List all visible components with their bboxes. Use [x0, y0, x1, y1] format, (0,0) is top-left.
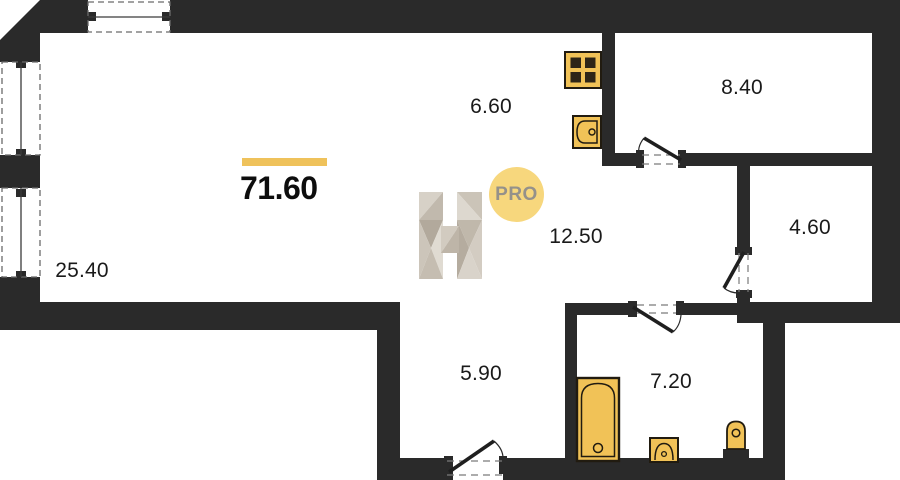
- total-area-underline: [242, 158, 327, 166]
- room-area-label-living-room: 25.40: [55, 259, 109, 283]
- floor-plan: 25.40 6.60 8.40 4.60 12.50 5.90 7.20 71.…: [0, 0, 900, 480]
- pro-badge: PRO: [489, 167, 544, 222]
- entrance-door-icon: [447, 441, 503, 475]
- floor-plan-drawing: [0, 0, 900, 480]
- room-area-label-bedroom: 8.40: [721, 76, 763, 100]
- room-area-label-storage: 4.60: [789, 216, 831, 240]
- window-left-upper-icon: [2, 62, 40, 155]
- room-area-label-bathroom: 7.20: [650, 370, 692, 394]
- total-area-value: 71.60: [240, 170, 318, 207]
- bedroom-door-icon: [639, 138, 681, 164]
- storage-door-icon: [724, 252, 748, 293]
- room-area-label-corridor: 5.90: [460, 362, 502, 386]
- stove-icon: [565, 52, 601, 88]
- bathtub-icon: [577, 378, 619, 461]
- window-left-lower-icon: [2, 188, 40, 277]
- h-logo-watermark: [419, 192, 482, 279]
- room-area-label-hall: 12.50: [549, 225, 603, 249]
- bathroom-door-icon: [633, 305, 681, 332]
- toilet-icon: [723, 422, 749, 463]
- window-top-icon: [88, 2, 170, 32]
- washbasin-icon: [650, 438, 678, 462]
- room-area-label-kitchen: 6.60: [470, 95, 512, 119]
- kitchen-sink-icon: [573, 116, 601, 148]
